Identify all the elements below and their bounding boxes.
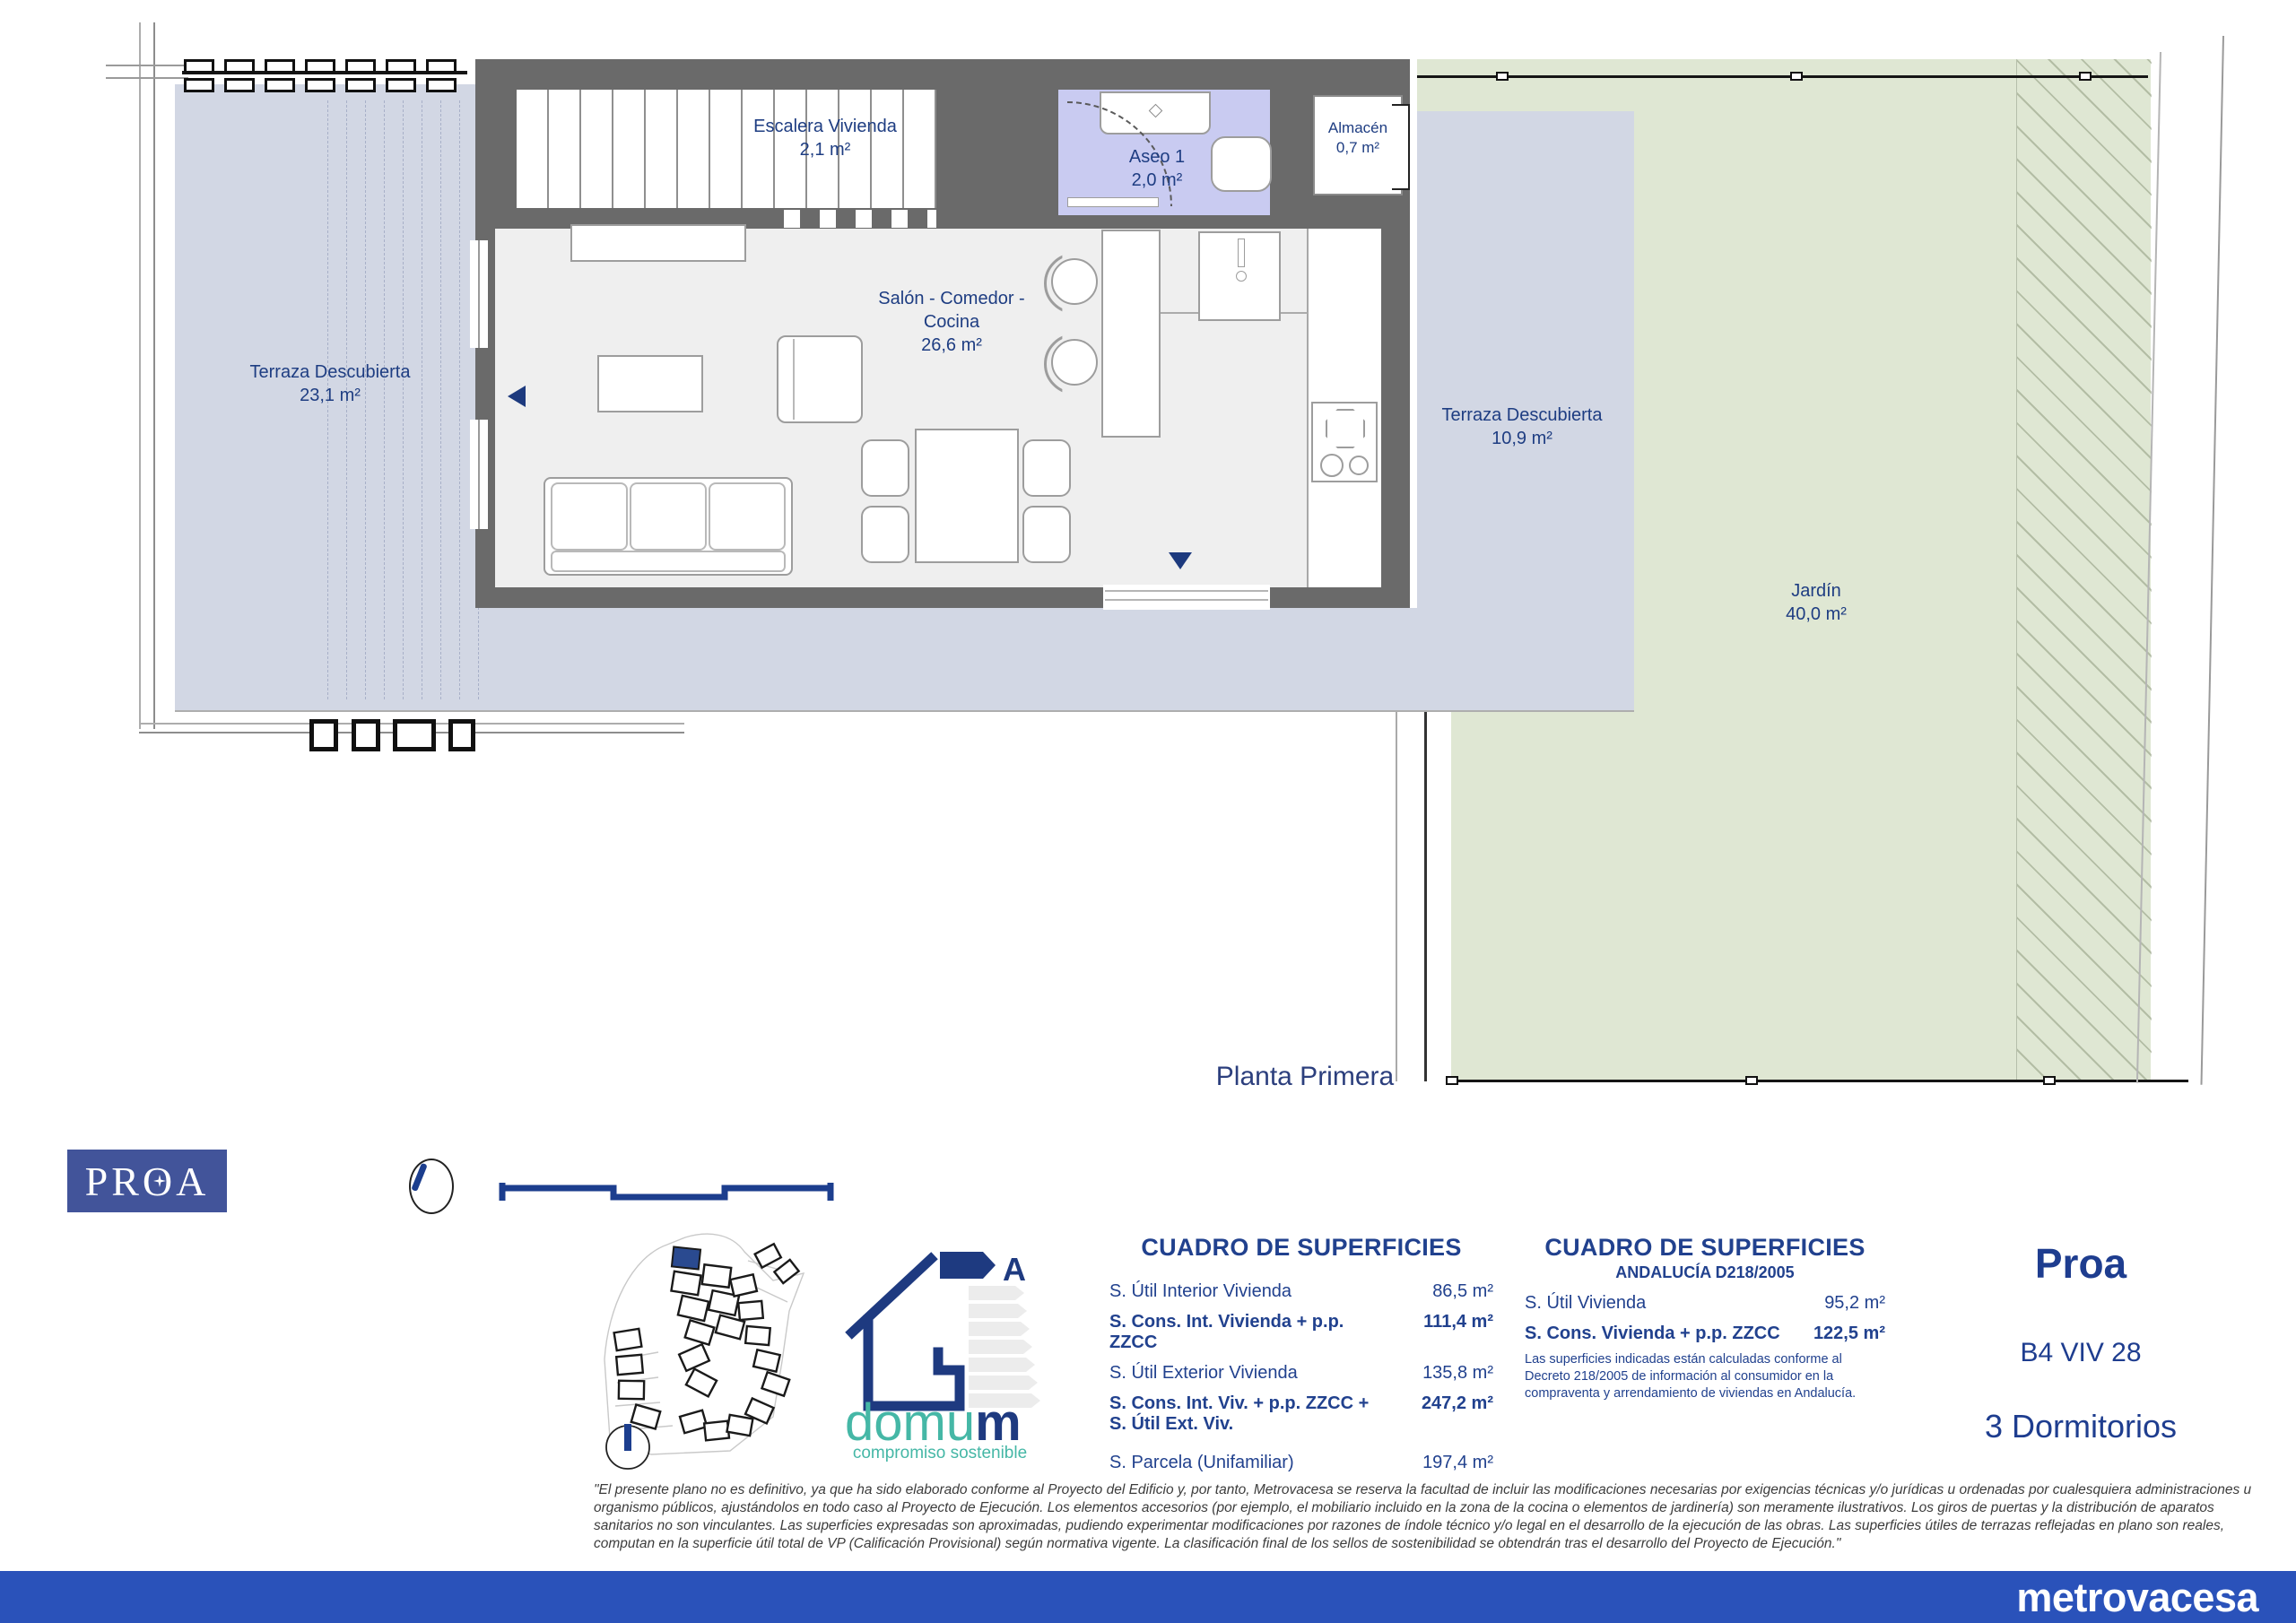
room-label-almacen: Almacén 0,7 m² [1311, 118, 1405, 158]
dining-chair [861, 439, 909, 497]
room-name: Jardín [1791, 581, 1841, 601]
row-value: 95,2 m² [1799, 1293, 1885, 1314]
garden-left-offset [1417, 710, 1451, 1081]
row-value: 135,8 m² [1407, 1363, 1493, 1384]
room-name: Terraza Descubierta [250, 362, 411, 382]
room-label-jardin: Jardín 40,0 m² [1673, 579, 1960, 626]
window-left-lower-glass [478, 420, 480, 529]
project-name: Proa [1919, 1239, 2242, 1288]
terrace-bottom-edge [175, 710, 1634, 712]
row-value: 86,5 m² [1407, 1281, 1493, 1302]
door-leaf [1067, 197, 1159, 207]
domum-tagline: compromiso sostenible [853, 1444, 1027, 1462]
room-label-salon: Salón - Comedor - Cocina 26,6 m² [808, 287, 1095, 357]
stairs-dashed-wall [764, 210, 936, 228]
room-label-aseo: Aseo 1 2,0 m² [1085, 145, 1229, 192]
terrace-door-opening [1103, 585, 1270, 610]
surface-table-general: CUADRO DE SUPERFICIES S. Útil Interior V… [1109, 1234, 1493, 1473]
terrace-door-line-a [1105, 590, 1268, 592]
table-row: S. Útil Interior Vivienda 86,5 m² [1109, 1281, 1493, 1302]
sideboard [570, 224, 746, 262]
proa-logo: PROA [67, 1150, 227, 1212]
dining-table [915, 429, 1019, 563]
row-value: 111,4 m² [1407, 1312, 1493, 1332]
window-left-upper-glass [478, 240, 480, 348]
room-area: 10,9 m² [1378, 427, 1665, 450]
site-plan-highlighted-unit [672, 1246, 700, 1269]
row-label: S. Útil Vivienda [1525, 1293, 1799, 1314]
garden-hatch-strip [2016, 59, 2152, 1081]
disclaimer-text: "El presente plano no es definitivo, ya … [594, 1481, 2264, 1554]
kitchen-island-bar [1101, 230, 1161, 438]
metrovacesa-logo: metrovacesa [2016, 1575, 2258, 1621]
energy-bars [969, 1286, 1040, 1408]
room-label-escalera: Escalera Vivienda 2,1 m² [682, 115, 969, 161]
room-name-line2: Cocina [924, 312, 979, 332]
room-area: 2,1 m² [682, 138, 969, 161]
table-row: S. Cons. Vivienda + p.p. ZZCC 122,5 m² [1525, 1324, 1885, 1344]
row-label: S. Parcela (Unifamiliar) [1109, 1453, 1389, 1473]
table-row: S. Parcela (Unifamiliar) 197,4 m² [1109, 1453, 1493, 1473]
floor-title: Planta Primera [1166, 1062, 1444, 1092]
dining-chair [861, 506, 909, 563]
energy-label: A [1003, 1251, 1026, 1288]
fence-post [1790, 72, 1803, 81]
armchair-cushion-line [793, 339, 795, 420]
domum-logo: A domum compromiso sostenible [834, 1227, 1049, 1462]
fence-post [2079, 72, 2092, 81]
louver-window-strip [184, 59, 457, 97]
tv-unit [597, 355, 703, 412]
room-name: Almacén [1328, 119, 1387, 136]
unit-code: B4 VIV 28 [1919, 1338, 2242, 1368]
fence-post [1745, 1076, 1758, 1085]
garden-fence-bottom [1451, 1080, 2188, 1082]
row-value: 247,2 m² [1407, 1393, 1493, 1414]
room-name: Terraza Descubierta [1442, 405, 1603, 425]
entry-arrow-left-icon [508, 386, 526, 407]
fence-post [2043, 1076, 2056, 1085]
sofa [544, 477, 793, 576]
site-plan-map [596, 1225, 820, 1485]
fence-post [1496, 72, 1509, 81]
row-label: S. Cons. Int. Vivienda + p.p. ZZCC [1109, 1312, 1389, 1353]
room-name: Aseo 1 [1129, 147, 1185, 167]
kitchen-sink [1198, 231, 1281, 321]
table-row: S. Útil Vivienda 95,2 m² [1525, 1293, 1885, 1314]
fence-post [1446, 1076, 1458, 1085]
row-value: 197,4 m² [1407, 1453, 1493, 1473]
compass-icon [409, 1159, 454, 1214]
row-label: S. Cons. Vivienda + p.p. ZZCC [1525, 1324, 1799, 1344]
window-square [448, 719, 475, 751]
garden-fence-top [1417, 75, 2148, 78]
window-square [393, 719, 436, 751]
room-area: 0,7 m² [1311, 138, 1405, 158]
room-area: 2,0 m² [1085, 169, 1229, 192]
room-name-line1: Salón - Comedor - [878, 289, 1024, 308]
proa-logo-text: PROA [85, 1158, 210, 1205]
room-name: Escalera Vivienda [753, 117, 897, 136]
window-square [309, 719, 338, 751]
dining-chair [1022, 506, 1071, 563]
room-label-terraza-right: Terraza Descubierta 10,9 m² [1378, 404, 1665, 450]
survey-line-top-a [106, 65, 188, 66]
table-row: S. Útil Exterior Vivienda 135,8 m² [1109, 1363, 1493, 1384]
terrace-door-line-b [1105, 599, 1268, 601]
row-label: S. Útil Exterior Vivienda [1109, 1363, 1389, 1384]
house-icon [852, 1259, 960, 1406]
north-indicator [606, 1424, 649, 1469]
survey-line-left-outer [139, 22, 141, 729]
window-square [352, 719, 380, 751]
table-title: CUADRO DE SUPERFICIES [1525, 1234, 1885, 1262]
plot-boundary-right-outer [2200, 36, 2224, 1085]
room-label-terraza-left: Terraza Descubierta 23,1 m² [187, 360, 474, 407]
row-value: 122,5 m² [1799, 1324, 1885, 1344]
unit-bedrooms: 3 Dormitorios [1919, 1408, 2242, 1445]
room-area: 26,6 m² [808, 334, 1095, 357]
table-note: Las superficies indicadas están calculad… [1525, 1351, 1885, 1402]
table-row: S. Cons. Int. Viv. + p.p. ZZCC + S. Útil… [1109, 1393, 1493, 1435]
footer-bar: metrovacesa [0, 1571, 2296, 1623]
table-row: S. Cons. Int. Vivienda + p.p. ZZCC 111,4… [1109, 1312, 1493, 1353]
survey-line-left-inner [153, 22, 155, 729]
dining-chair [1022, 439, 1071, 497]
plot-line-below-house-b [1424, 712, 1427, 1081]
row-label: S. Cons. Int. Viv. + p.p. ZZCC + S. Útil… [1109, 1393, 1389, 1435]
survey-line-top-b [106, 77, 188, 79]
energy-arrow-a [940, 1252, 996, 1279]
room-area: 40,0 m² [1673, 603, 1960, 626]
table-subtitle: ANDALUCÍA D218/2005 [1525, 1263, 1885, 1282]
scale-bar [499, 1182, 834, 1205]
floor-plan-sheet: Escalera Vivienda 2,1 m² Aseo 1 2,0 m² A… [0, 0, 2296, 1623]
exit-arrow-down-icon [1169, 552, 1192, 569]
cooktop [1311, 402, 1378, 482]
surface-table-andalucia: CUADRO DE SUPERFICIES ANDALUCÍA D218/200… [1525, 1234, 1885, 1402]
table-title: CUADRO DE SUPERFICIES [1109, 1234, 1493, 1262]
row-label: S. Útil Interior Vivienda [1109, 1281, 1389, 1302]
plot-line-below-house-a [1396, 712, 1397, 1081]
room-area: 23,1 m² [187, 384, 474, 407]
unit-info-block: Proa B4 VIV 28 3 Dormitorios [1919, 1239, 2242, 1445]
